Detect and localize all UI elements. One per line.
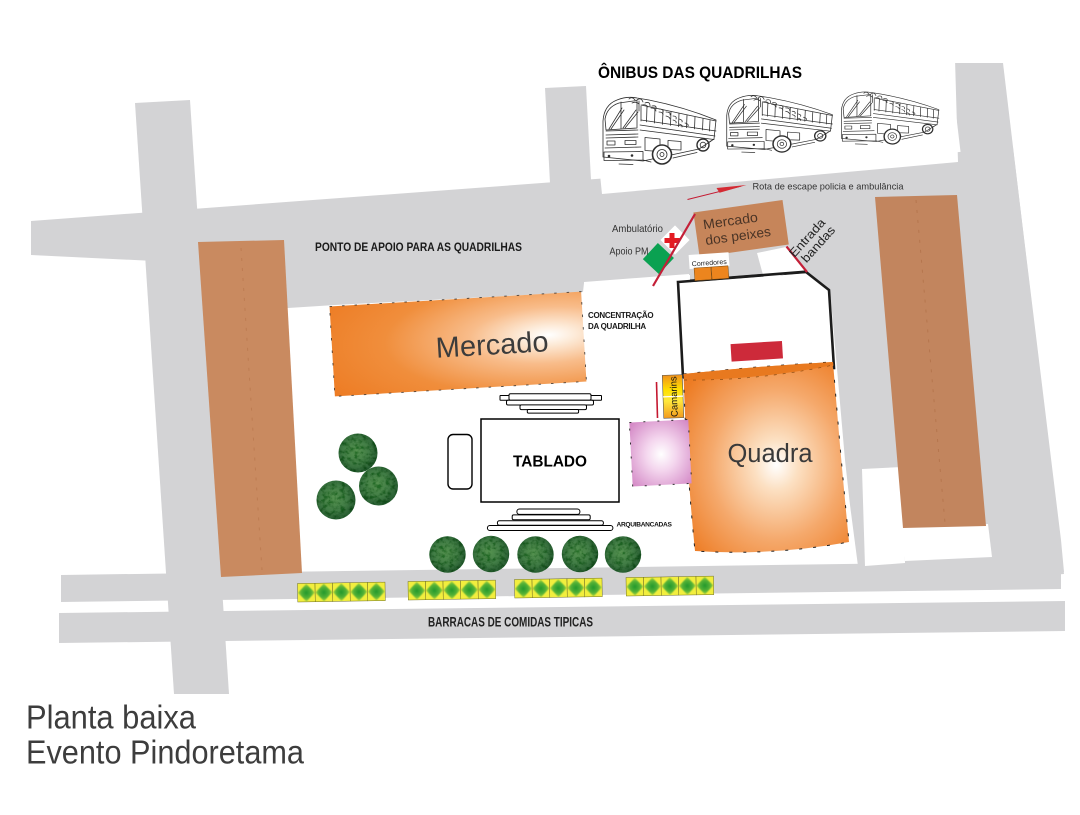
svg-text:Evento Pindoretama: Evento Pindoretama bbox=[26, 734, 305, 771]
svg-text:ÔNIBUS DAS QUADRILHAS: ÔNIBUS DAS QUADRILHAS bbox=[598, 63, 802, 82]
svg-text:Mercado: Mercado bbox=[435, 326, 550, 365]
svg-text:ARQUIBANCADAS: ARQUIBANCADAS bbox=[617, 522, 673, 529]
svg-text:DA QUADRILHA: DA QUADRILHA bbox=[588, 322, 646, 331]
svg-text:PONTO DE APOIO PARA AS QUADRIL: PONTO DE APOIO PARA AS QUADRILHAS bbox=[315, 240, 522, 254]
svg-text:Quadra: Quadra bbox=[727, 440, 813, 468]
svg-text:Camarins: Camarins bbox=[668, 376, 680, 417]
svg-text:BARRACAS DE COMIDAS TIPICAS: BARRACAS DE COMIDAS TIPICAS bbox=[428, 614, 593, 630]
svg-text:Planta baixa: Planta baixa bbox=[26, 699, 197, 736]
svg-text:Ambulatório: Ambulatório bbox=[612, 223, 663, 235]
svg-text:TABLADO: TABLADO bbox=[513, 454, 587, 471]
svg-text:CONCENTRAÇÃO: CONCENTRAÇÃO bbox=[588, 311, 653, 320]
svg-text:Rota de escape policia e ambul: Rota de escape policia e ambulância bbox=[753, 182, 905, 193]
svg-text:Apoio PM: Apoio PM bbox=[610, 246, 649, 258]
